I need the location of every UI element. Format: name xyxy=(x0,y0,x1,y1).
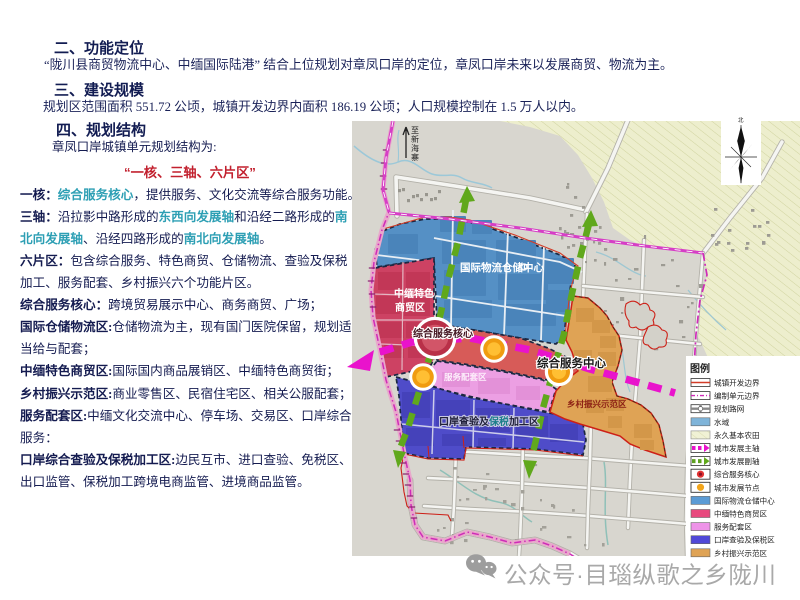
svg-text:城市发展节点: 城市发展节点 xyxy=(714,482,760,492)
svg-text:规划路网: 规划路网 xyxy=(714,404,744,414)
svg-text:综合服务中心: 综合服务中心 xyxy=(537,356,606,370)
svg-text:中缅特色商贸区: 中缅特色商贸区 xyxy=(714,509,768,519)
svg-text:寨: 寨 xyxy=(411,152,419,162)
svg-text:综合服务核心: 综合服务核心 xyxy=(413,327,473,340)
svg-text:乡村振兴示范区: 乡村振兴示范区 xyxy=(567,399,627,409)
svg-text:北: 北 xyxy=(738,116,744,124)
svg-text:新: 新 xyxy=(411,134,419,144)
svg-text:水域: 水域 xyxy=(714,417,730,427)
svg-text:国际物流仓储中心: 国际物流仓储中心 xyxy=(714,495,775,505)
svg-text:商贸区: 商贸区 xyxy=(395,301,425,314)
svg-text:口岸查验及保税加工区: 口岸查验及保税加工区 xyxy=(439,415,539,428)
svg-text:服务配套区: 服务配套区 xyxy=(714,522,752,532)
svg-text:城市发展副轴: 城市发展副轴 xyxy=(714,456,760,466)
svg-text:图例: 图例 xyxy=(690,362,710,375)
svg-text:至: 至 xyxy=(411,126,419,135)
svg-text:编制单元边界: 编制单元边界 xyxy=(714,391,760,401)
svg-text:海: 海 xyxy=(411,143,419,153)
svg-text:服务配套区: 服务配套区 xyxy=(444,372,487,382)
svg-text:口岸查验及保税区: 口岸查验及保税区 xyxy=(714,535,775,545)
svg-text:国际物流仓储中心: 国际物流仓储中心 xyxy=(460,261,544,274)
svg-text:综合服务核心: 综合服务核心 xyxy=(714,469,760,479)
svg-text:中缅特色: 中缅特色 xyxy=(394,287,434,300)
svg-text:城镇开发边界: 城镇开发边界 xyxy=(714,378,760,388)
svg-text:城市发展主轴: 城市发展主轴 xyxy=(714,443,760,453)
svg-text:永久基本农田: 永久基本农田 xyxy=(714,430,760,440)
